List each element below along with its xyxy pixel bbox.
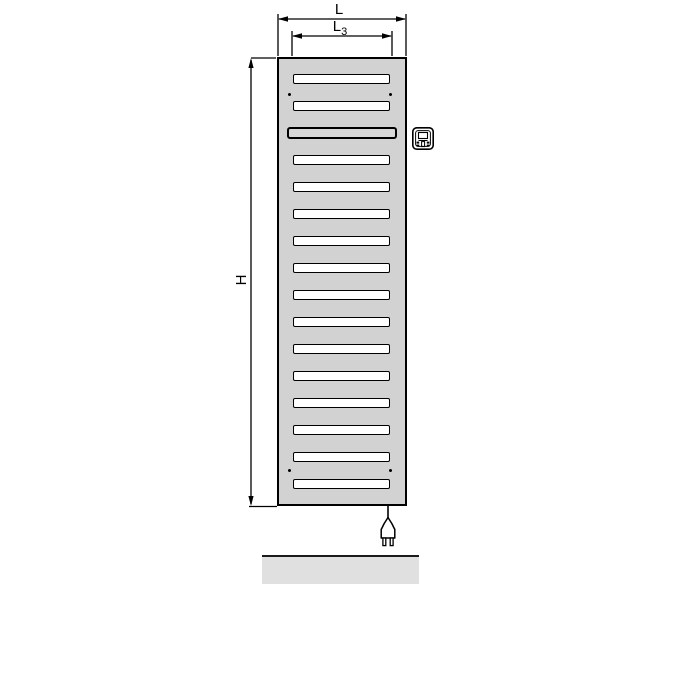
power-plug-icon bbox=[381, 505, 395, 546]
radiator-slat bbox=[293, 263, 390, 273]
radiator-slat bbox=[293, 155, 390, 165]
floor-bar bbox=[262, 555, 419, 584]
radiator-slat bbox=[293, 182, 390, 192]
radiator-slat bbox=[293, 479, 390, 489]
radiator-slat-special bbox=[287, 127, 397, 139]
radiator-slat bbox=[293, 425, 390, 435]
radiator-slat bbox=[293, 209, 390, 219]
radiator-slat bbox=[293, 101, 390, 111]
control-unit-icon bbox=[413, 128, 433, 149]
radiator-slat bbox=[293, 371, 390, 381]
screw-hole-bottom-left bbox=[288, 469, 291, 472]
radiator-slat bbox=[293, 344, 390, 354]
dimension-label-inner-width-base: L bbox=[333, 18, 341, 35]
radiator-slat bbox=[293, 290, 390, 300]
dimension-label-height: H bbox=[234, 266, 250, 294]
screw-hole-top-left bbox=[288, 93, 291, 96]
radiator-slat bbox=[293, 452, 390, 462]
dimension-label-inner-width-subscript: 3 bbox=[341, 26, 347, 38]
screw-hole-bottom-right bbox=[389, 469, 392, 472]
radiator-slat bbox=[293, 74, 390, 84]
dimension-label-inner-width: L3 bbox=[326, 19, 354, 35]
radiator-body bbox=[277, 57, 407, 506]
screw-hole-top-right bbox=[389, 93, 392, 96]
radiator-slat bbox=[293, 398, 390, 408]
radiator-slat bbox=[293, 317, 390, 327]
diagram-canvas: L L3 H bbox=[0, 0, 700, 700]
dimension-height-H bbox=[248, 58, 277, 507]
radiator-slat bbox=[293, 236, 390, 246]
dimension-label-width: L bbox=[325, 2, 353, 18]
